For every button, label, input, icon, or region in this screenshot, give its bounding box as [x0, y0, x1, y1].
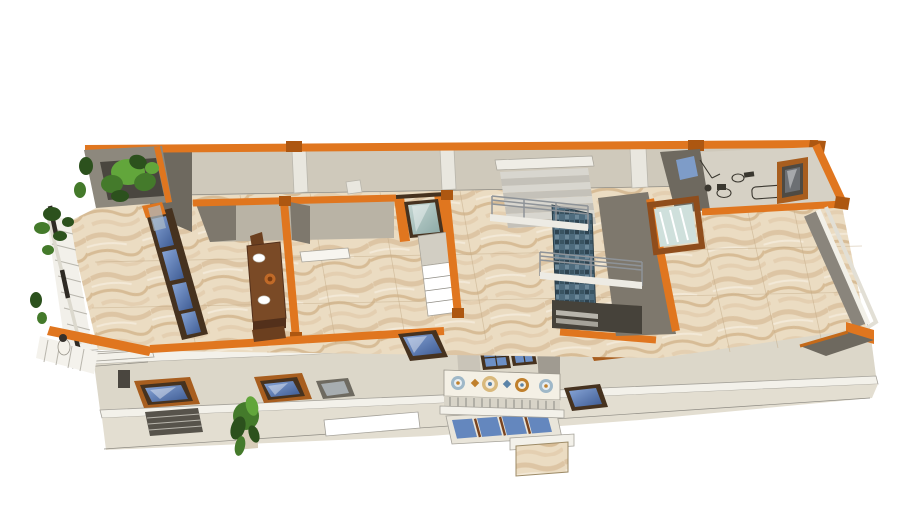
north-wall-cap [85, 144, 818, 149]
room-top-cap [193, 198, 396, 203]
tile-rosette-2 [482, 376, 498, 392]
corner-planter [84, 146, 172, 208]
cap-block-3 [441, 190, 453, 200]
tile-rosette-1 [451, 376, 465, 390]
render-canvas [0, 0, 900, 522]
bathroom-window [777, 157, 808, 204]
divider-face [290, 202, 310, 244]
tile-rosette-4 [539, 379, 553, 393]
cap-joint-1 [286, 141, 302, 152]
skylight-window-3 [316, 378, 355, 399]
bathroom-cap-corner [834, 196, 850, 210]
wall-bracket [118, 370, 130, 388]
skylight-window-2 [254, 373, 312, 403]
terrace-door [650, 199, 702, 252]
low-right-window [564, 384, 608, 411]
awning [145, 408, 203, 436]
stone-pillar [516, 442, 568, 476]
cap-block-1 [279, 196, 291, 206]
tile-rosette-3 [515, 378, 529, 392]
tiled-parapet [440, 370, 564, 418]
cap-block-4 [452, 308, 464, 318]
bathroom-small-window [676, 156, 698, 180]
floor-plan-render [0, 0, 900, 522]
skylight-window-1 [134, 377, 200, 408]
